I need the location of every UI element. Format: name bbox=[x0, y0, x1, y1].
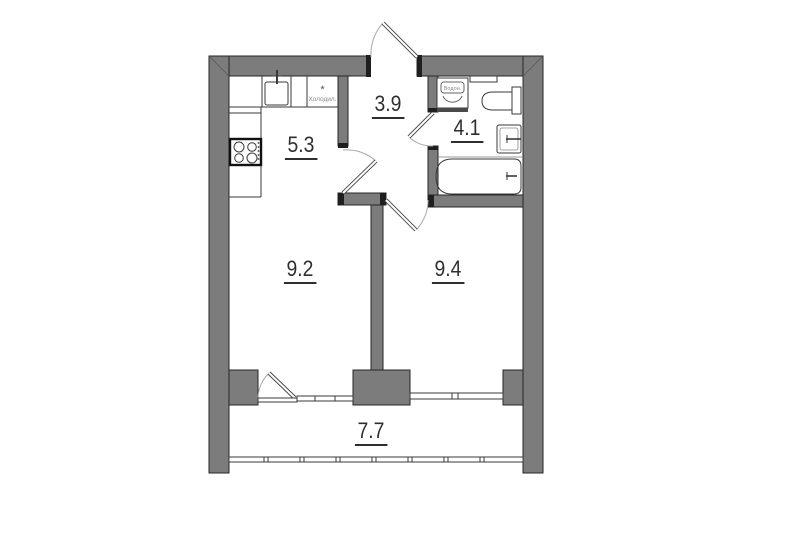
room-label-balcony: 7.7 bbox=[355, 420, 387, 446]
living-room-window bbox=[297, 396, 353, 401]
bathroom-door-arc bbox=[409, 137, 433, 146]
svg-text:*: * bbox=[320, 84, 325, 96]
balcony-door-threshold bbox=[258, 398, 297, 402]
room-label-bathroom: 4.1 bbox=[451, 117, 483, 143]
svg-text:Холодил.: Холодил. bbox=[308, 96, 336, 103]
bedroom-door-arc bbox=[416, 200, 428, 230]
toilet-icon bbox=[482, 87, 521, 114]
svg-text:Водон.: Водон. bbox=[444, 86, 462, 92]
balcony-door-arc bbox=[258, 373, 269, 398]
kitchen-fixtures: * Холодил. bbox=[229, 70, 338, 197]
entrance-door-arc bbox=[371, 23, 383, 57]
stove-icon bbox=[230, 139, 261, 165]
room-label-hallway: 3.9 bbox=[372, 93, 404, 119]
bathroom-shelf bbox=[470, 76, 497, 82]
floor-plan: * Холодил. Водон. bbox=[0, 0, 792, 549]
bedroom-window bbox=[410, 393, 503, 399]
kitchen-door-arc bbox=[343, 150, 376, 161]
room-label-kitchen: 5.3 bbox=[285, 134, 317, 160]
floor-plan-drawing: * Холодил. Водон. bbox=[0, 0, 792, 549]
fridge-icon: * Холодил. bbox=[308, 84, 336, 103]
room-label-living-room: 9.2 bbox=[284, 258, 316, 284]
room-label-bedroom: 9.4 bbox=[432, 258, 464, 284]
bathtub-icon bbox=[436, 157, 523, 194]
water-heater-icon: Водон. bbox=[437, 78, 468, 112]
bathroom-sink-icon bbox=[497, 125, 521, 153]
